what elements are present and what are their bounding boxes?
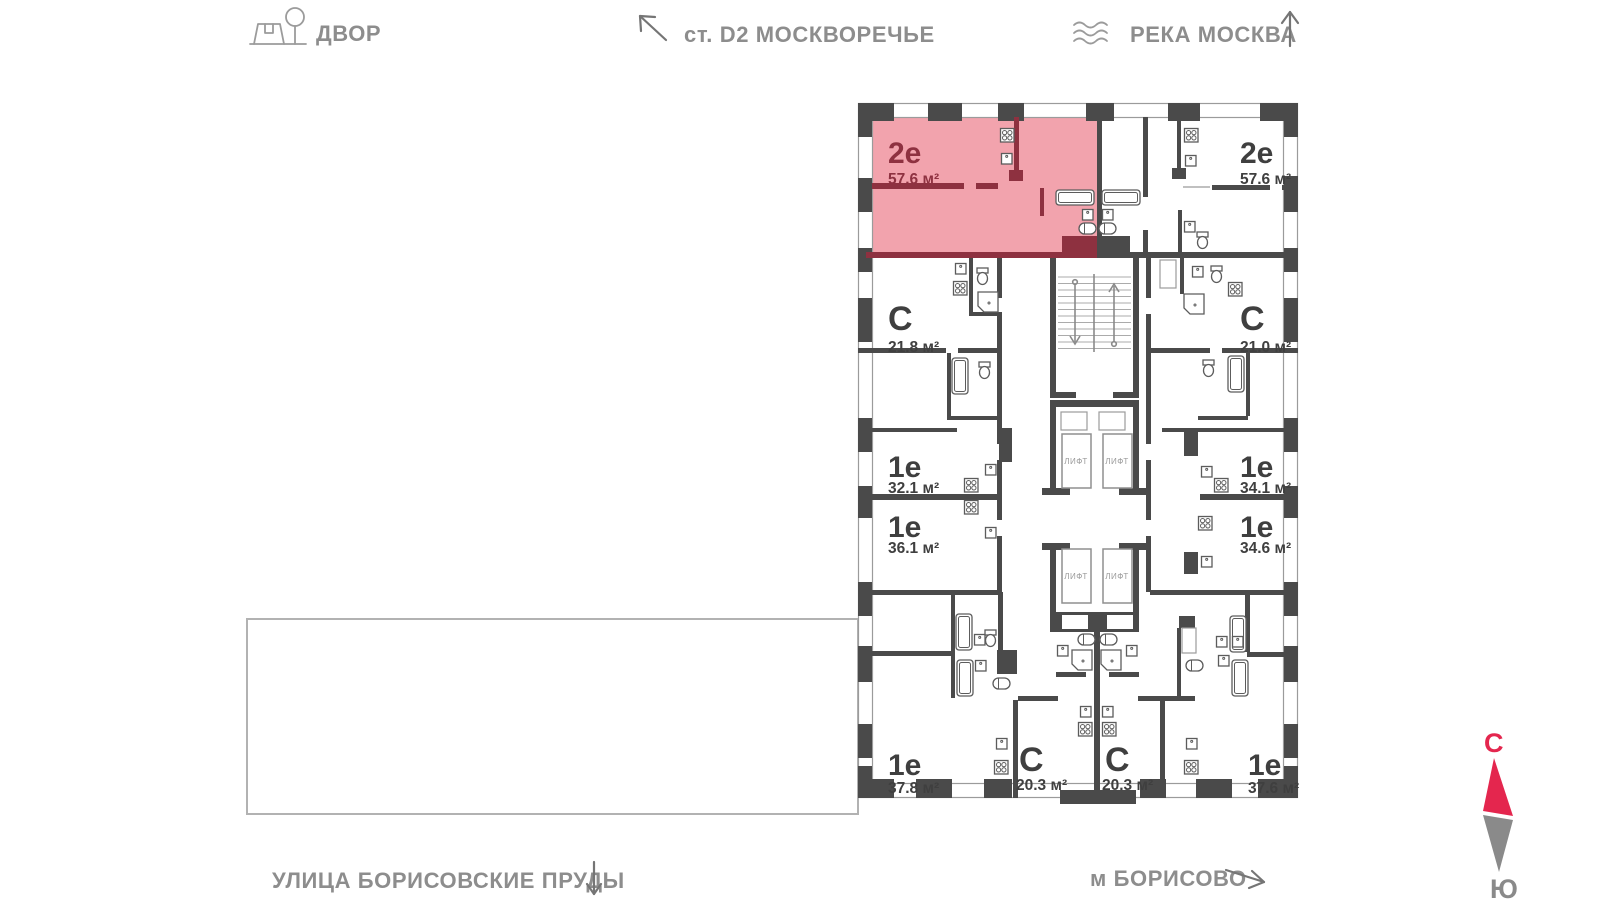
apartment-area: 34.1 м² [1240,480,1291,497]
apartment-type: С [1105,741,1130,779]
courtyard-icon [250,8,306,44]
compass-needle-north [1483,758,1513,816]
staircase [1058,274,1131,352]
apartment-type: С [1240,300,1265,338]
courtyard-label: ДВОР [316,21,381,46]
compass: С Ю [1483,728,1518,904]
apartment-type: 2е [1240,137,1273,170]
apartment-1e-left-upper[interactable]: 1е 32.1 м² [872,432,997,497]
toilet-icon [1203,360,1214,377]
apartment-type: С [888,300,913,338]
toilet-icon [1078,634,1095,645]
metro-label: м БОРИСОВО [1090,866,1247,891]
bathtub-icon [1228,356,1244,392]
elevator-label: ЛИФТ [1064,457,1088,466]
apartment-type: 1е [1248,749,1281,782]
river-waves-icon [1074,23,1107,44]
apartment-area: 37.8 м² [888,780,939,797]
street-label: УЛИЦА БОРИСОВСКИЕ ПРУДЫ [272,868,625,893]
apartment-1e-bottom-left[interactable]: 1е 37.8 м² [872,596,1012,797]
poi-river: РЕКА МОСКВА [1074,12,1298,47]
apartment-2e-top-left[interactable]: 2е 57.6 м² [872,118,1097,252]
elevator-label: ЛИФТ [1105,572,1129,581]
apartment-1e-right-lower[interactable]: 1е 34.6 м² [1151,500,1291,588]
apartment-area: 21.8 м² [888,339,939,356]
apartment-c-bottom-left[interactable]: С 20.3 м² [1016,701,1094,794]
poi-street: УЛИЦА БОРИСОВСКИЕ ПРУДЫ [272,862,625,894]
apartment-area: 57.6 м² [888,171,939,188]
station-label: ст. D2 МОСКВОРЕЧЬЕ [684,22,935,47]
apartment-area: 20.3 м² [1102,777,1153,794]
bathtub-icon [1102,190,1140,205]
river-label: РЕКА МОСКВА [1130,22,1297,47]
shower-icon [1101,650,1121,670]
sink-icon [1127,646,1138,657]
poi-courtyard: ДВОР [250,8,381,46]
toilet-icon [1099,223,1116,234]
toilet-icon [1100,634,1117,645]
elevators: ЛИФТ ЛИФТ ЛИФТ ЛИФТ [1061,412,1132,603]
apartment-area: 57.6 м² [1240,171,1291,188]
poi-metro: м БОРИСОВО [1090,866,1264,891]
apartment-2e-top-right[interactable]: 2е 57.6 м² [1150,118,1291,252]
apartment-c-bottom-right[interactable]: С 20.3 м² [1100,701,1160,794]
sink-icon [1058,646,1069,657]
stairs-down-arrow [1070,280,1080,344]
apartment-area: 20.3 м² [1016,777,1067,794]
arrow-up-left-icon [640,16,666,40]
apartment-type: 1е [888,749,921,782]
apartment-1e-bottom-right[interactable]: 1е 37.6 м² [1165,596,1299,797]
floor-plan-page: ЛИФТ ЛИФТ ЛИФТ ЛИФТ [0,0,1600,920]
apartment-area: 21.0 м² [1240,339,1291,356]
poi-station: ст. D2 МОСКВОРЕЧЬЕ [640,16,935,47]
apartment-area: 32.1 м² [888,480,939,497]
apartment-type: С [1019,741,1044,779]
apartment-area: 34.6 м² [1240,540,1291,557]
apartment-area: 36.1 м² [888,540,939,557]
apartment-1e-left-lower[interactable]: 1е 36.1 м² [872,500,997,588]
compass-south-label: Ю [1490,874,1518,904]
sink-icon [1103,210,1114,221]
toilet-icon [979,362,990,379]
apartment-c-mid-left[interactable]: С 21.8 м² [872,262,997,356]
apartment-area: 37.6 м² [1248,780,1299,797]
apartment-1e-right-upper[interactable]: 1е 34.1 м² [1151,432,1291,497]
bathtub-icon [952,358,968,394]
shower-icon [1072,650,1092,670]
adjacent-building-outline [247,619,858,814]
compass-needle-south [1483,815,1513,872]
elevator-label: ЛИФТ [1105,457,1129,466]
apartment-c-mid-right[interactable]: С 21.0 м² [1151,262,1291,356]
elevator-label: ЛИФТ [1064,572,1088,581]
stairs-up-arrow [1109,284,1119,346]
floor-plan-svg: ЛИФТ ЛИФТ ЛИФТ ЛИФТ [0,0,1600,920]
compass-north-label: С [1484,728,1504,758]
apartment-type: 2е [888,137,921,170]
